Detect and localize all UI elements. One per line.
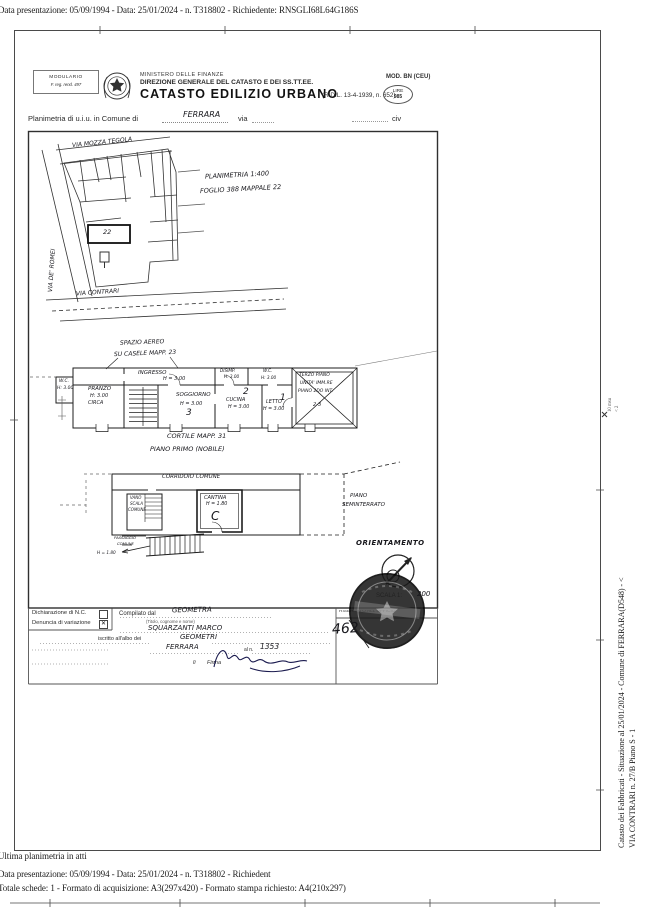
albo-number: 1353 bbox=[260, 643, 279, 651]
vano-label-2: SCALA bbox=[130, 502, 143, 506]
planimetria-caption: Planimetria di u.i.u. in Comune di bbox=[28, 115, 138, 123]
via-dotted-line bbox=[252, 114, 274, 123]
reference-number: 462 bbox=[332, 621, 360, 637]
cantina-name: CANTINA bbox=[204, 496, 226, 501]
room-soggiorno-height: H = 3.00 bbox=[180, 402, 202, 407]
room-ingresso-height: H = 3.00 bbox=[163, 377, 185, 382]
scanned-cadastral-document: Data presentazione: 05/09/1994 - Data: 2… bbox=[0, 0, 650, 918]
room-wc2-height: H: 3.00 bbox=[261, 376, 276, 380]
room-wc2-name: W.C. bbox=[263, 369, 272, 373]
cantina-height: H = 1.80 bbox=[206, 503, 227, 508]
checkbox-variazione: ✕ bbox=[99, 620, 108, 629]
basement-caption-2: SEMINTERRATO bbox=[342, 503, 385, 509]
passage-height: H = 1.80 bbox=[97, 551, 116, 555]
room-soggiorno-name: SOGGIORNO bbox=[176, 393, 211, 399]
room-pranzo-name: PRANZO bbox=[88, 387, 111, 393]
basement-floor-drawing bbox=[60, 462, 400, 556]
footer-line-1: Ultima planimetria in atti bbox=[0, 852, 87, 861]
room-wc1-name: W.C. bbox=[59, 380, 69, 385]
cantina-letter: C bbox=[211, 510, 219, 522]
variation-label: Denuncia di variazione bbox=[32, 621, 91, 627]
vano-label-1: VANO bbox=[130, 496, 141, 500]
modulario-box: MODULARIO F. reg. rend. 497 bbox=[33, 70, 99, 94]
vano-label-3: COMUNE bbox=[128, 508, 146, 512]
room-pranzo-height: H: 3.00 bbox=[90, 394, 108, 399]
compilato-value: GEOMETRA bbox=[172, 607, 212, 615]
document-linework bbox=[0, 0, 650, 918]
room-disimp-name: DISIMP. bbox=[220, 369, 235, 373]
side-caption-line1: Catasto dei Fabbricati - Situazione al 2… bbox=[616, 378, 627, 848]
compilato-label: Compilato dal bbox=[119, 611, 156, 617]
modulario-label: MODULARIO bbox=[34, 75, 98, 80]
passage-label-1: PASSAGGIO bbox=[114, 536, 136, 540]
reserved-office-label: RISERVATO ALL'UFFICIO bbox=[339, 610, 434, 615]
floor1-caption-cortile: CORTILE MAPP. 31 bbox=[167, 433, 226, 440]
margin-note-line2: < 2 bbox=[615, 378, 622, 412]
side-caption: Catasto dei Fabbricati - Situazione al 2… bbox=[616, 378, 638, 848]
room-soggiorno-number: 3 bbox=[186, 409, 192, 418]
scale-label: SCALA 1: bbox=[376, 593, 402, 599]
place-value: FERRARA bbox=[166, 644, 199, 651]
lire-value: 985 bbox=[384, 94, 412, 100]
state-emblem-icon bbox=[100, 68, 134, 108]
corridor-label: CORRIDOIO COMUNE bbox=[162, 475, 220, 481]
excluded-area-line2: UNITA' IMM.RE bbox=[300, 382, 333, 387]
room-disimp-height: H: 3.00 bbox=[224, 375, 239, 379]
albo-value: GEOMETRI bbox=[180, 634, 217, 641]
civ-label: civ bbox=[392, 115, 401, 123]
al-n-label: al n. bbox=[244, 648, 253, 653]
li-label: lì bbox=[193, 661, 196, 667]
footer-line-3: Totale schede: 1 - Formato di acquisizio… bbox=[0, 884, 346, 893]
room-cucina-number: 2 bbox=[243, 388, 249, 397]
excluded-area-line3: PIANO 2DO INT. bbox=[298, 390, 333, 395]
excluded-area-line4: 2-3 bbox=[313, 403, 321, 408]
albo-label: iscritto all'albo dei bbox=[98, 637, 141, 643]
parcel-number: 22 bbox=[103, 229, 111, 236]
scan-header-line: Data presentazione: 05/09/1994 - Data: 2… bbox=[0, 6, 358, 15]
via-label: via bbox=[238, 115, 248, 123]
document-title: CATASTO EDILIZIO URBANO bbox=[140, 88, 338, 101]
floor1-caption-piano: PIANO PRIMO (NOBILE) bbox=[150, 446, 225, 453]
comune-value: FERRARA bbox=[183, 111, 220, 119]
mod-code: MOD. BN (CEU) bbox=[386, 74, 430, 80]
basement-caption-1: PIANO bbox=[350, 494, 367, 500]
declaration-label: Dichiarazione di N.C. bbox=[32, 611, 86, 617]
side-caption-line2: VIA CONTRARI n. 27/B Piano S - 1 bbox=[627, 378, 638, 848]
ministry-line: MINISTERO DELLE FINANZE bbox=[140, 73, 224, 79]
modulario-sub: F. reg. rend. 497 bbox=[34, 82, 98, 87]
excluded-area-line1: TERZO PIANO bbox=[299, 374, 330, 379]
room-cucina-height: H = 3.00 bbox=[228, 406, 249, 411]
room-cucina-name: CUCINA bbox=[226, 398, 245, 403]
lire-stamp: LIRE 985 bbox=[383, 85, 413, 104]
margin-note: 10 msu < 2 bbox=[608, 378, 621, 412]
checkbox-dichiarazione bbox=[99, 610, 108, 619]
passage-label-2: COMUNE bbox=[117, 542, 134, 546]
direzione-line: DIREZIONE GENERALE DEL CATASTO E DEI SS.… bbox=[140, 80, 313, 87]
room-wc1-height: H: 3.00 bbox=[57, 387, 73, 392]
room-letto-height: H = 3.00 bbox=[263, 408, 284, 413]
technician-name: SQUARZANTI MARCO bbox=[148, 625, 222, 632]
firma-label: Firma bbox=[207, 661, 221, 667]
scale-value: 200 bbox=[417, 591, 430, 598]
room-pranzo-circa: CIRCA bbox=[88, 401, 103, 406]
room-letto-number: 1 bbox=[280, 394, 286, 403]
footer-line-2: Data presentazione: 05/09/1994 - Data: 2… bbox=[0, 870, 271, 879]
civ-dotted-line bbox=[352, 113, 388, 122]
orientation-label: ORIENTAMENTO bbox=[356, 540, 425, 547]
